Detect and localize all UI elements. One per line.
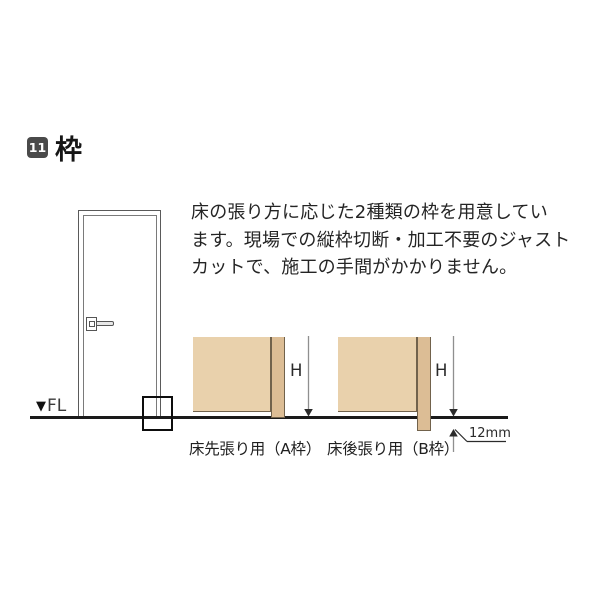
section-number-badge: 11	[27, 137, 48, 158]
description-line: カットで、施工の手間がかかりません。	[191, 254, 587, 282]
frame-bottom-highlight	[142, 396, 173, 431]
diagram-b-offset-label: 12mm	[469, 426, 511, 441]
diagram-b-frame-member	[417, 337, 431, 431]
floor-line	[30, 416, 508, 419]
door-handle-lever	[96, 321, 114, 326]
diagram-b-height-label: H	[435, 361, 447, 380]
diagram-a-height-label: H	[290, 361, 302, 380]
floor-level-marker-icon: ▼	[36, 399, 46, 414]
diagram-b-wall	[338, 337, 417, 412]
floor-level-label: ▼ FL	[36, 397, 66, 415]
description-line: 床の張り方に応じた2種類の枠を用意してい	[191, 199, 587, 227]
door-handle-dot	[89, 321, 95, 327]
diagram-a-frame-member	[271, 337, 285, 418]
diagram-a-wall	[193, 337, 271, 412]
floor-level-text: FL	[47, 396, 66, 416]
diagram-a-caption: 床先張り用（A枠）	[189, 437, 321, 459]
description-text: 床の張り方に応じた2種類の枠を用意してい ます。現場での縦枠切断・加工不要のジャ…	[191, 199, 587, 282]
diagram-b-caption: 床後張り用（B枠）	[327, 437, 459, 459]
page-title: 枠	[55, 128, 83, 167]
catalog-page: 11 枠 床の張り方に応じた2種類の枠を用意してい ます。現場での縦枠切断・加工…	[0, 0, 600, 600]
description-line: ます。現場での縦枠切断・加工不要のジャスト	[191, 227, 587, 255]
